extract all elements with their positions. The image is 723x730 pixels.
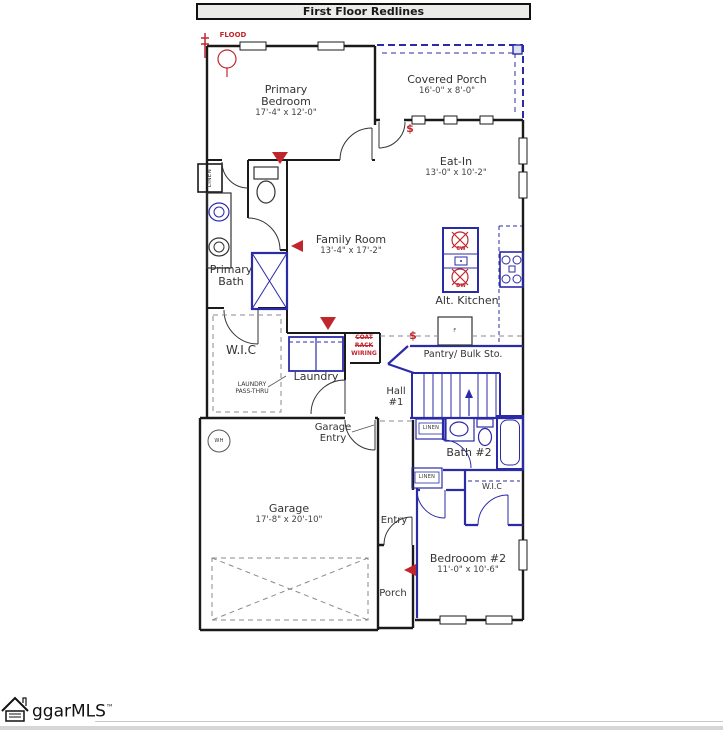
bath2-toilet-tank (477, 419, 493, 427)
label-bath-2: Bath #2 (434, 447, 504, 459)
wic-shelving-dashed (213, 315, 281, 412)
dashed-lines (213, 315, 523, 421)
counter-dashed-line (499, 226, 522, 344)
sink-2 (209, 238, 229, 256)
label-garage: Garage 17'-8" x 20'-10" (234, 503, 344, 525)
label-wic-bedroom2: W.I.C (467, 481, 517, 493)
label-water-heater: WH (214, 438, 223, 444)
label-linen-primary: LINEN (207, 169, 213, 187)
bath2-toilet-bowl (479, 429, 492, 446)
label-linen-hall: LINEN (419, 474, 435, 480)
label-porch: Porch (371, 588, 415, 599)
red-triangle-bath (272, 152, 288, 164)
label-family-room: Family Room 13'-4" x 17'-2" (296, 234, 406, 256)
label-hall-1: Hall #1 (381, 386, 411, 408)
label-wic-primary: W.I.C (211, 344, 271, 356)
mls-logo: ggarMLS™ (2, 696, 114, 724)
red-triangle-laundry (320, 317, 336, 330)
garage-door-dashed (212, 558, 368, 620)
stairs-up-arrow (465, 389, 473, 398)
bottom-bar (0, 726, 723, 730)
label-bedroom-2: Bedrooom #2 11'-0" x 10'-6" (413, 553, 523, 575)
garage-elements (208, 376, 374, 620)
label-laundry-pass-thru: LAUNDRY PASS-THRU (227, 381, 277, 395)
label-eat-in: Eat-In 13'-0" x 10'-2" (401, 156, 511, 178)
porch-corner-marker (513, 45, 522, 54)
label-primary-bath: Primary Bath (202, 264, 260, 288)
range (499, 226, 523, 344)
redline-dollar-pantry: $ (409, 329, 417, 342)
sink-1 (209, 203, 229, 221)
label-covered-porch: Covered Porch 16'-0" x 8'-0" (382, 74, 512, 96)
label-fridge: F (453, 328, 456, 334)
footer-hairline (95, 721, 723, 722)
toilet-bowl (257, 181, 275, 203)
redline-flood-text: FLOOD (220, 31, 247, 39)
laundry-appliances (289, 337, 343, 371)
mls-logo-text: ggarMLS™ (32, 696, 114, 724)
bath2-sink (450, 422, 468, 436)
label-pantry: Pantry/ Bulk Sto. (403, 349, 523, 360)
toilet-tank (254, 167, 278, 179)
label-laundry: Laundry (281, 371, 351, 383)
windows (240, 42, 527, 624)
stairs (412, 373, 500, 417)
redline-island-mark-2: DW (456, 283, 466, 289)
redline-dollar-eat-in: $ (406, 122, 414, 135)
redline-coat-rack-wiring: COAT RACK WIRING (351, 334, 377, 358)
label-linen-bath2: LINEN (423, 425, 439, 431)
label-primary-bedroom: Primary Bedroom 17'-4" x 12'-0" (246, 84, 326, 118)
floor-plan-drawing (0, 0, 723, 730)
label-alt-kitchen: Alt. Kitchen (417, 295, 517, 307)
floor-plan-page: First Floor Redlines (0, 0, 723, 730)
redline-island-mark-1: CW (456, 246, 465, 252)
label-garage-entry: Garage Entry (307, 422, 359, 444)
label-entry: Entry (374, 515, 414, 526)
vanity-counter (207, 193, 231, 268)
